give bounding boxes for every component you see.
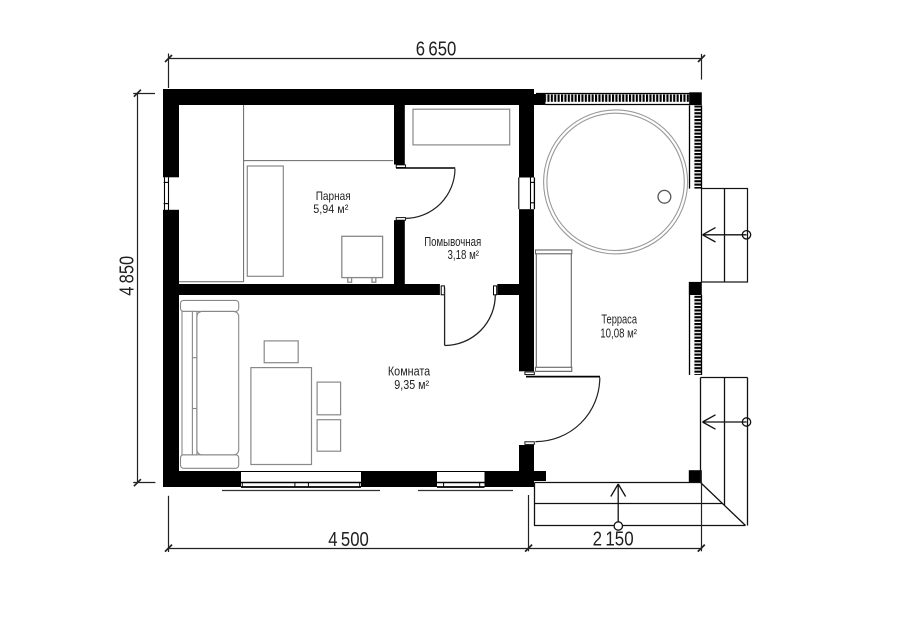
svg-text:4 850: 4 850 [116, 256, 138, 296]
svg-text:Парная: Парная [316, 189, 351, 203]
svg-text:4 500: 4 500 [328, 529, 369, 551]
svg-text:10,08 м²: 10,08 м² [600, 327, 637, 341]
svg-text:Терраса: Терраса [601, 312, 637, 326]
svg-text:Помывочная: Помывочная [424, 235, 481, 249]
svg-text:6 650: 6 650 [416, 38, 457, 60]
svg-text:2 150: 2 150 [593, 529, 634, 551]
svg-text:Комната: Комната [388, 365, 430, 379]
svg-text:9,35 м²: 9,35 м² [394, 378, 429, 392]
svg-text:3,18 м²: 3,18 м² [448, 248, 480, 262]
svg-text:5,94 м²: 5,94 м² [313, 202, 348, 216]
